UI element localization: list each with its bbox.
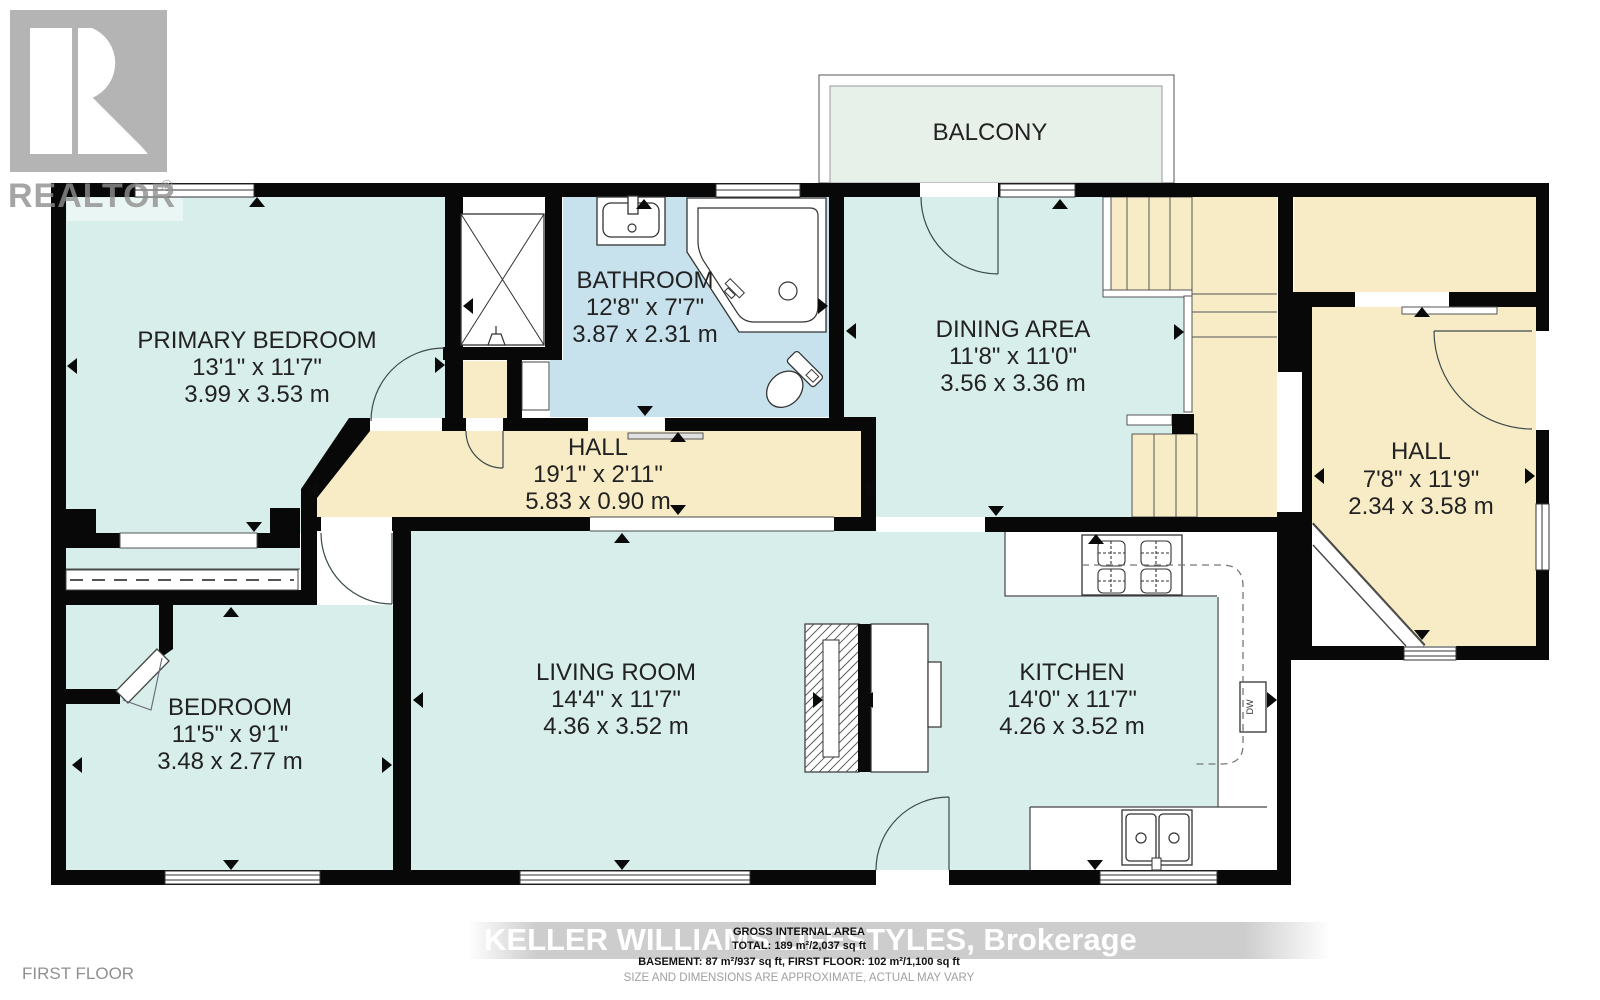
svg-text:12'8" x 7'7": 12'8" x 7'7" <box>586 294 704 321</box>
svg-text:3.48 x 2.77 m: 3.48 x 2.77 m <box>157 748 302 775</box>
svg-text:LIVING ROOM: LIVING ROOM <box>536 659 696 686</box>
svg-text:BATHROOM: BATHROOM <box>577 267 714 294</box>
svg-text:FIRST FLOOR: FIRST FLOOR <box>22 964 134 983</box>
svg-text:13'1" x 11'7": 13'1" x 11'7" <box>192 354 322 381</box>
svg-text:11'8" x 11'0": 11'8" x 11'0" <box>949 343 1077 370</box>
svg-text:TOTAL: 189 m²/2,037 sq ft: TOTAL: 189 m²/2,037 sq ft <box>732 940 866 952</box>
svg-text:5.83 x 0.90 m: 5.83 x 0.90 m <box>525 488 670 515</box>
svg-text:BALCONY: BALCONY <box>933 119 1048 146</box>
svg-text:GROSS INTERNAL AREA: GROSS INTERNAL AREA <box>733 926 865 938</box>
svg-text:19'1" x 2'11": 19'1" x 2'11" <box>533 461 663 488</box>
svg-text:7'8" x 11'9": 7'8" x 11'9" <box>1363 466 1480 493</box>
svg-text:3.87 x 2.31 m: 3.87 x 2.31 m <box>572 321 717 348</box>
svg-text:®: ® <box>161 178 173 195</box>
svg-text:3.56 x 3.36 m: 3.56 x 3.36 m <box>940 370 1085 397</box>
svg-text:BEDROOM: BEDROOM <box>168 694 292 721</box>
svg-text:14'4" x 11'7": 14'4" x 11'7" <box>551 686 681 713</box>
svg-text:2.34 x 3.58 m: 2.34 x 3.58 m <box>1348 493 1493 520</box>
svg-text:HALL: HALL <box>568 434 628 461</box>
svg-text:4.36 x 3.52 m: 4.36 x 3.52 m <box>543 713 688 740</box>
svg-text:BASEMENT: 87 m²/937 sq ft, FIR: BASEMENT: 87 m²/937 sq ft, FIRST FLOOR: … <box>638 956 960 968</box>
svg-text:3.99 x 3.53 m: 3.99 x 3.53 m <box>184 381 329 408</box>
svg-text:SIZE AND DIMENSIONS ARE APPROX: SIZE AND DIMENSIONS ARE APPROXIMATE, ACT… <box>624 972 975 984</box>
svg-text:DW: DW <box>1245 699 1255 714</box>
svg-text:4.26 x 3.52 m: 4.26 x 3.52 m <box>999 713 1144 740</box>
svg-text:KITCHEN: KITCHEN <box>1019 659 1124 686</box>
svg-text:DINING AREA: DINING AREA <box>936 316 1091 343</box>
svg-text:PRIMARY BEDROOM: PRIMARY BEDROOM <box>137 327 376 354</box>
svg-text:REALTOR: REALTOR <box>8 177 176 215</box>
svg-text:11'5" x 9'1": 11'5" x 9'1" <box>172 721 289 748</box>
svg-text:HALL: HALL <box>1391 438 1451 465</box>
svg-text:14'0" x 11'7": 14'0" x 11'7" <box>1007 686 1137 713</box>
